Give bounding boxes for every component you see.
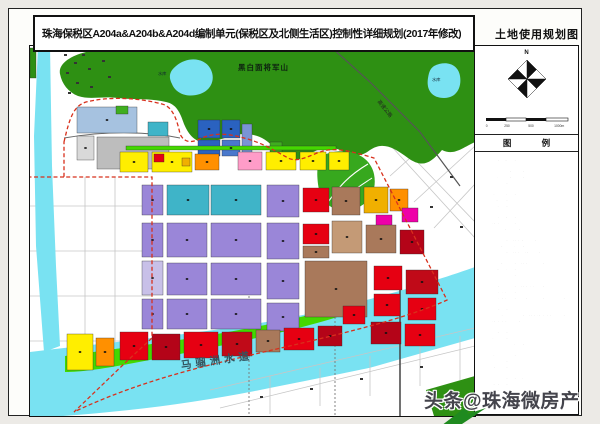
scale-number: 500 <box>528 125 534 128</box>
title-box: 珠海保税区A204a&A204b&A204d编制单元(保税区及北侧生活区)控制性… <box>33 15 475 52</box>
reservoir-1-label: 水库 <box>158 70 166 76</box>
legend-list: 二类居住用地居住用地（兼容商业服务业设施用地）一般商业中心用地二级商业中心用地商… <box>475 152 578 402</box>
compass-icon <box>507 56 547 102</box>
scale-numbers: 02505001000m <box>485 124 568 129</box>
legend-item: 商业用地（兼容二类居住用地） <box>480 230 576 236</box>
parcel <box>116 106 128 114</box>
scale-bar-icon <box>485 116 569 124</box>
reservoir-2-label: 水库 <box>432 76 440 82</box>
parcel <box>148 122 168 136</box>
watermark-text: 头条@珠海微房产 <box>424 386 580 413</box>
scale-number: 1000m <box>554 125 564 128</box>
map-sheet-title: 土地使用规划图 <box>495 26 579 42</box>
scanned-plan-page: 珠海保税区A204a&A204b&A204d编制单元(保税区及北侧生活区)控制性… <box>0 0 600 424</box>
mountain-label: 黑白面将军山 <box>238 62 289 73</box>
river-left <box>34 46 60 352</box>
scale-number: 250 <box>504 125 510 128</box>
legend-item: 居住用地（兼容商业服务业设施用地） <box>480 161 576 167</box>
plan-sheet: 珠海保税区A204a&A204b&A204d编制单元(保税区及北侧生活区)控制性… <box>8 8 582 416</box>
scale-bar: 02505001000m <box>485 116 568 132</box>
scale-number: 0 <box>486 125 488 128</box>
legend-header: 图 例 <box>475 134 578 152</box>
legend-item: 混合功能用地（一类工业用地＋商业用地） <box>480 293 576 299</box>
parcel <box>182 158 190 166</box>
parcel <box>402 208 418 222</box>
map-area: 黑白面将军山 水库 水库 高速公路 马骝洲水道 <box>29 45 476 417</box>
legend-item: 商业用地（兼容旅馆业用地） <box>480 247 576 253</box>
legend-sidebar: N <box>474 45 579 415</box>
page-title: 珠海保税区A204a&A204b&A204d编制单元(保税区及北侧生活区)控制性… <box>35 26 461 41</box>
parcel <box>154 154 164 162</box>
compass-rose: N <box>475 46 578 114</box>
legend-item: 弹性管理用地（一类工业用地＋新型产业用地＋仓储用地） <box>480 299 576 305</box>
parcel <box>30 48 36 78</box>
